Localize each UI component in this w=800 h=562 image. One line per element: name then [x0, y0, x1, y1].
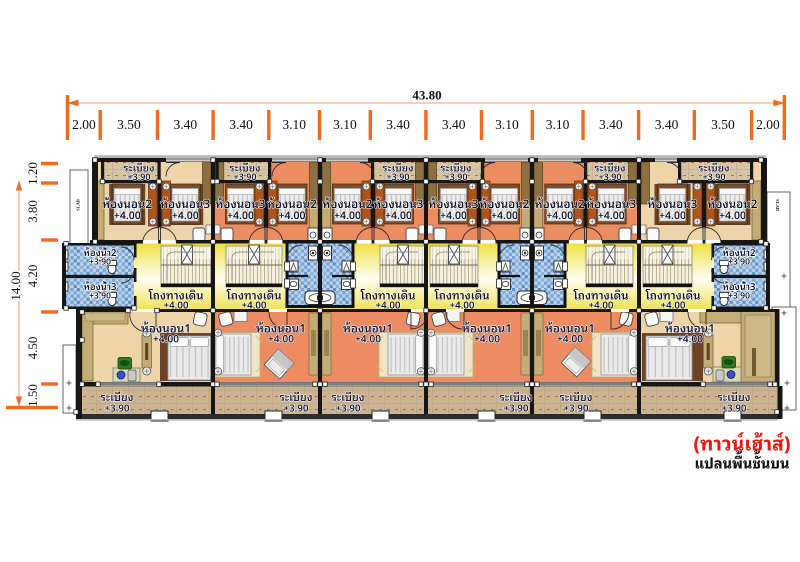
svg-text:3.10: 3.10 [333, 117, 357, 132]
svg-text:3.40: 3.40 [173, 117, 197, 132]
svg-text:3.40: 3.40 [442, 117, 466, 132]
svg-text:3.40: 3.40 [655, 117, 679, 132]
svg-text:2.00: 2.00 [756, 117, 780, 132]
svg-text:3.10: 3.10 [546, 117, 570, 132]
svg-text:3.80: 3.80 [25, 200, 40, 223]
svg-text:43.80: 43.80 [412, 88, 441, 103]
svg-text:1.50: 1.50 [25, 384, 40, 407]
svg-text:4.20: 4.20 [25, 265, 40, 288]
svg-text:3.40: 3.40 [229, 117, 253, 132]
svg-text:3.10: 3.10 [495, 117, 519, 132]
svg-text:3.50: 3.50 [711, 117, 735, 132]
svg-text:SLAB: SLAB [775, 199, 780, 211]
svg-text:3.40: 3.40 [599, 117, 623, 132]
svg-text:1.20: 1.20 [25, 162, 40, 185]
svg-text:2.00: 2.00 [72, 117, 96, 132]
svg-text:3.10: 3.10 [282, 117, 306, 132]
svg-text:4.50: 4.50 [25, 337, 40, 360]
svg-text:14.00: 14.00 [8, 271, 23, 300]
svg-text:SLAB: SLAB [76, 199, 81, 211]
svg-text:3.50: 3.50 [117, 117, 141, 132]
svg-text:3.40: 3.40 [386, 117, 410, 132]
